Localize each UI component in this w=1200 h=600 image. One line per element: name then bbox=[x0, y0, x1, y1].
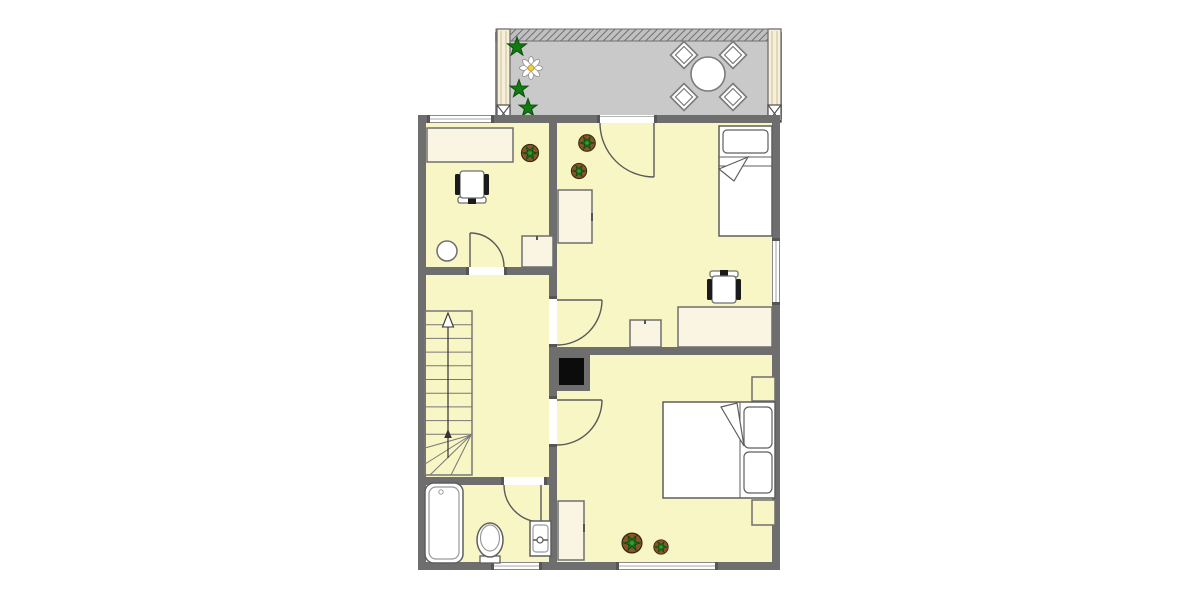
single-bed bbox=[719, 126, 772, 236]
nightstand bbox=[752, 377, 775, 401]
sink bbox=[530, 521, 551, 556]
round-table bbox=[691, 57, 725, 91]
potted-plant-icon bbox=[622, 533, 642, 553]
side-table bbox=[522, 236, 553, 267]
bathtub bbox=[425, 483, 463, 563]
desk bbox=[678, 307, 772, 347]
potted-plant-icon bbox=[654, 540, 668, 554]
pillow bbox=[744, 407, 772, 448]
balcony bbox=[496, 29, 781, 122]
round-stool bbox=[437, 241, 457, 261]
window-study-top bbox=[427, 115, 494, 123]
balcony-post-right bbox=[768, 29, 781, 122]
balcony-post-left bbox=[497, 29, 510, 122]
window-bedroom2-bottom bbox=[616, 562, 718, 570]
potted-plant-icon bbox=[521, 144, 538, 161]
balcony-railing bbox=[496, 29, 781, 41]
wall-bottom bbox=[418, 562, 780, 570]
office-chair bbox=[455, 171, 489, 204]
pillow bbox=[744, 452, 772, 493]
office-chair bbox=[707, 270, 741, 303]
potted-plant-icon bbox=[579, 135, 596, 152]
desk bbox=[427, 128, 513, 162]
floor-plan-page bbox=[0, 0, 1200, 600]
toilet bbox=[477, 523, 503, 563]
opening-bedroom2-door bbox=[549, 396, 557, 447]
opening-study-door bbox=[466, 267, 507, 275]
small-cabinet bbox=[630, 320, 661, 347]
chimney-shaft bbox=[553, 352, 590, 391]
pillow bbox=[723, 130, 768, 153]
opening-bedroom1-door bbox=[549, 296, 557, 347]
window-bedroom1-right bbox=[772, 238, 780, 305]
potted-plant-icon bbox=[571, 163, 586, 178]
opening-balcony-door bbox=[597, 115, 657, 123]
opening-bathroom-door bbox=[501, 477, 547, 485]
floor-plan-canvas bbox=[0, 0, 1200, 600]
wardrobe bbox=[558, 190, 592, 243]
double-bed bbox=[663, 402, 775, 498]
cabinet bbox=[558, 501, 584, 560]
nightstand bbox=[752, 500, 775, 525]
